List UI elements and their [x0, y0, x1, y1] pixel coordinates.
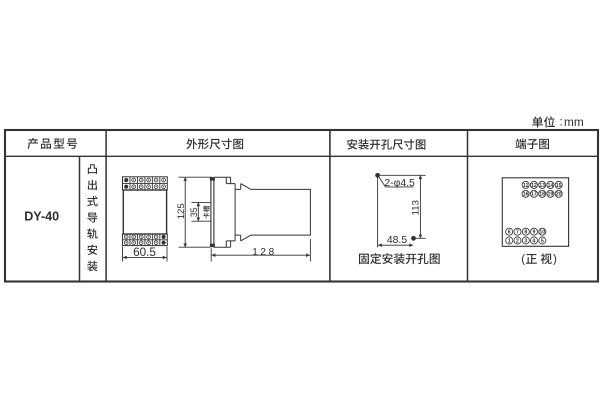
svg-text:6: 6: [508, 230, 511, 236]
svg-text:5: 5: [541, 238, 544, 244]
svg-text:20: 20: [556, 192, 562, 198]
svg-text:DY-40: DY-40: [24, 209, 59, 223]
svg-text:9: 9: [533, 230, 536, 236]
svg-text:11: 11: [523, 183, 529, 189]
svg-text::: :: [560, 117, 563, 129]
svg-text:12: 12: [531, 183, 537, 189]
svg-text:60.5: 60.5: [133, 246, 156, 259]
svg-text:17: 17: [531, 192, 537, 198]
svg-text:2-φ4.5: 2-φ4.5: [384, 178, 415, 189]
svg-text:): ): [553, 252, 557, 265]
svg-text:125: 125: [176, 203, 187, 219]
svg-text:(: (: [521, 252, 525, 265]
svg-text:14: 14: [548, 183, 554, 189]
svg-text:mm: mm: [564, 115, 584, 129]
svg-text:48.5: 48.5: [387, 235, 407, 246]
svg-text:2: 2: [516, 238, 519, 244]
svg-text:35: 35: [189, 207, 199, 217]
svg-text:19: 19: [548, 192, 554, 198]
svg-text:10: 10: [539, 230, 545, 236]
svg-text:7: 7: [516, 230, 519, 236]
svg-text:128: 128: [252, 247, 277, 258]
svg-text:13: 13: [539, 183, 545, 189]
svg-text:15: 15: [556, 183, 562, 189]
svg-text:113: 113: [411, 200, 422, 215]
svg-text:4: 4: [533, 238, 536, 244]
svg-text:18: 18: [539, 192, 545, 198]
svg-text:3: 3: [524, 238, 527, 244]
svg-text:1: 1: [508, 238, 511, 244]
svg-text:16: 16: [523, 192, 529, 198]
svg-text:8: 8: [524, 230, 527, 236]
